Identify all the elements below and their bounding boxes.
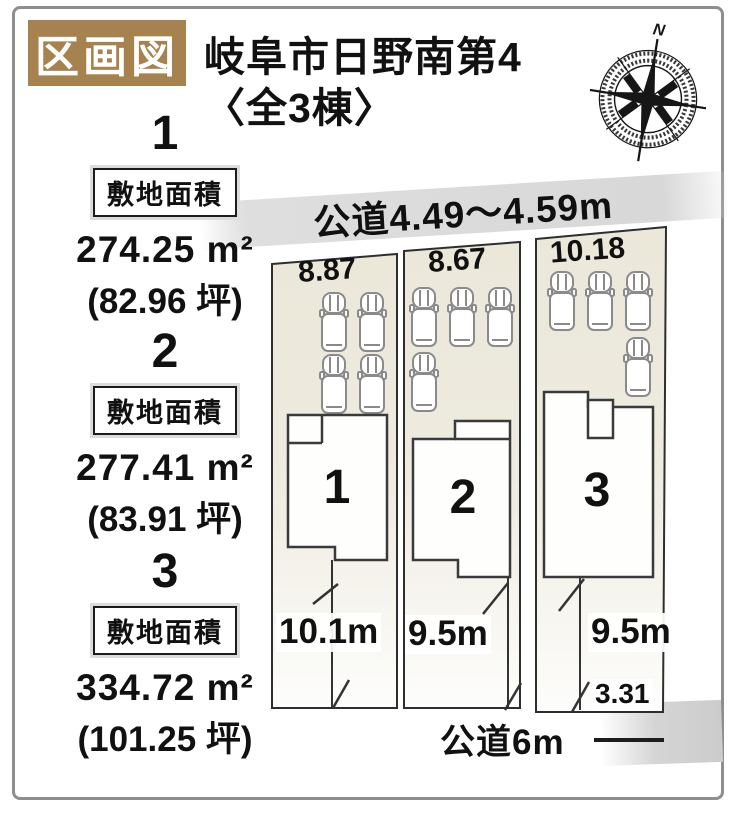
site-area-box: 敷地面積 [93,606,237,655]
site-number: 1 [40,110,290,158]
site-tsubo-value: (101.25 坪) [40,711,290,762]
site-block-3: 3 敷地面積 334.72 m² (101.25 坪) [40,548,290,762]
site-area-value: 274.25 m² [40,229,290,271]
plot-1-frontage: 8.87 [297,252,358,290]
bottom-road-label: 公道6m [440,714,565,765]
plot-3-extra-dimension: 3.31 [592,679,653,710]
plot-2-depth: 9.5m [405,615,491,654]
plot-1-number: 1 [315,460,359,515]
bottom-road-dash [594,738,664,742]
plot-3-depth: 9.5m [588,613,674,652]
site-area-value: 277.41 m² [40,447,290,489]
site-number: 2 [40,328,290,376]
site-tsubo-value: (83.91 坪) [40,491,290,542]
section-tag-label: 区画図 [35,21,179,85]
section-tag-box: 区画図 [28,20,186,86]
site-tsubo-value: (82.96 坪) [40,273,290,324]
plot-3-number: 3 [575,463,619,518]
plot-3-frontage: 10.18 [549,231,626,270]
plot-1-depth: 10.1m [276,613,381,652]
site-number: 3 [40,548,290,596]
site-block-2: 2 敷地面積 277.41 m² (83.91 坪) [40,328,290,542]
building-3-entry-box [588,400,613,438]
site-area-box: 敷地面積 [93,168,237,217]
plot-2-number: 2 [441,470,485,525]
site-block-1: 1 敷地面積 274.25 m² (82.96 坪) [40,110,290,324]
title-line1: 岐阜市日野南第4 [204,32,522,83]
plot-2-frontage: 8.67 [427,242,488,280]
site-area-value: 334.72 m² [40,667,290,709]
compass-rose-icon: N [585,14,711,166]
compass-north-label: N [652,20,667,40]
site-area-box: 敷地面積 [93,386,237,435]
flyer-plot-map: 区画図 岐阜市日野南第4 〈全3棟〉 N [0,0,740,830]
